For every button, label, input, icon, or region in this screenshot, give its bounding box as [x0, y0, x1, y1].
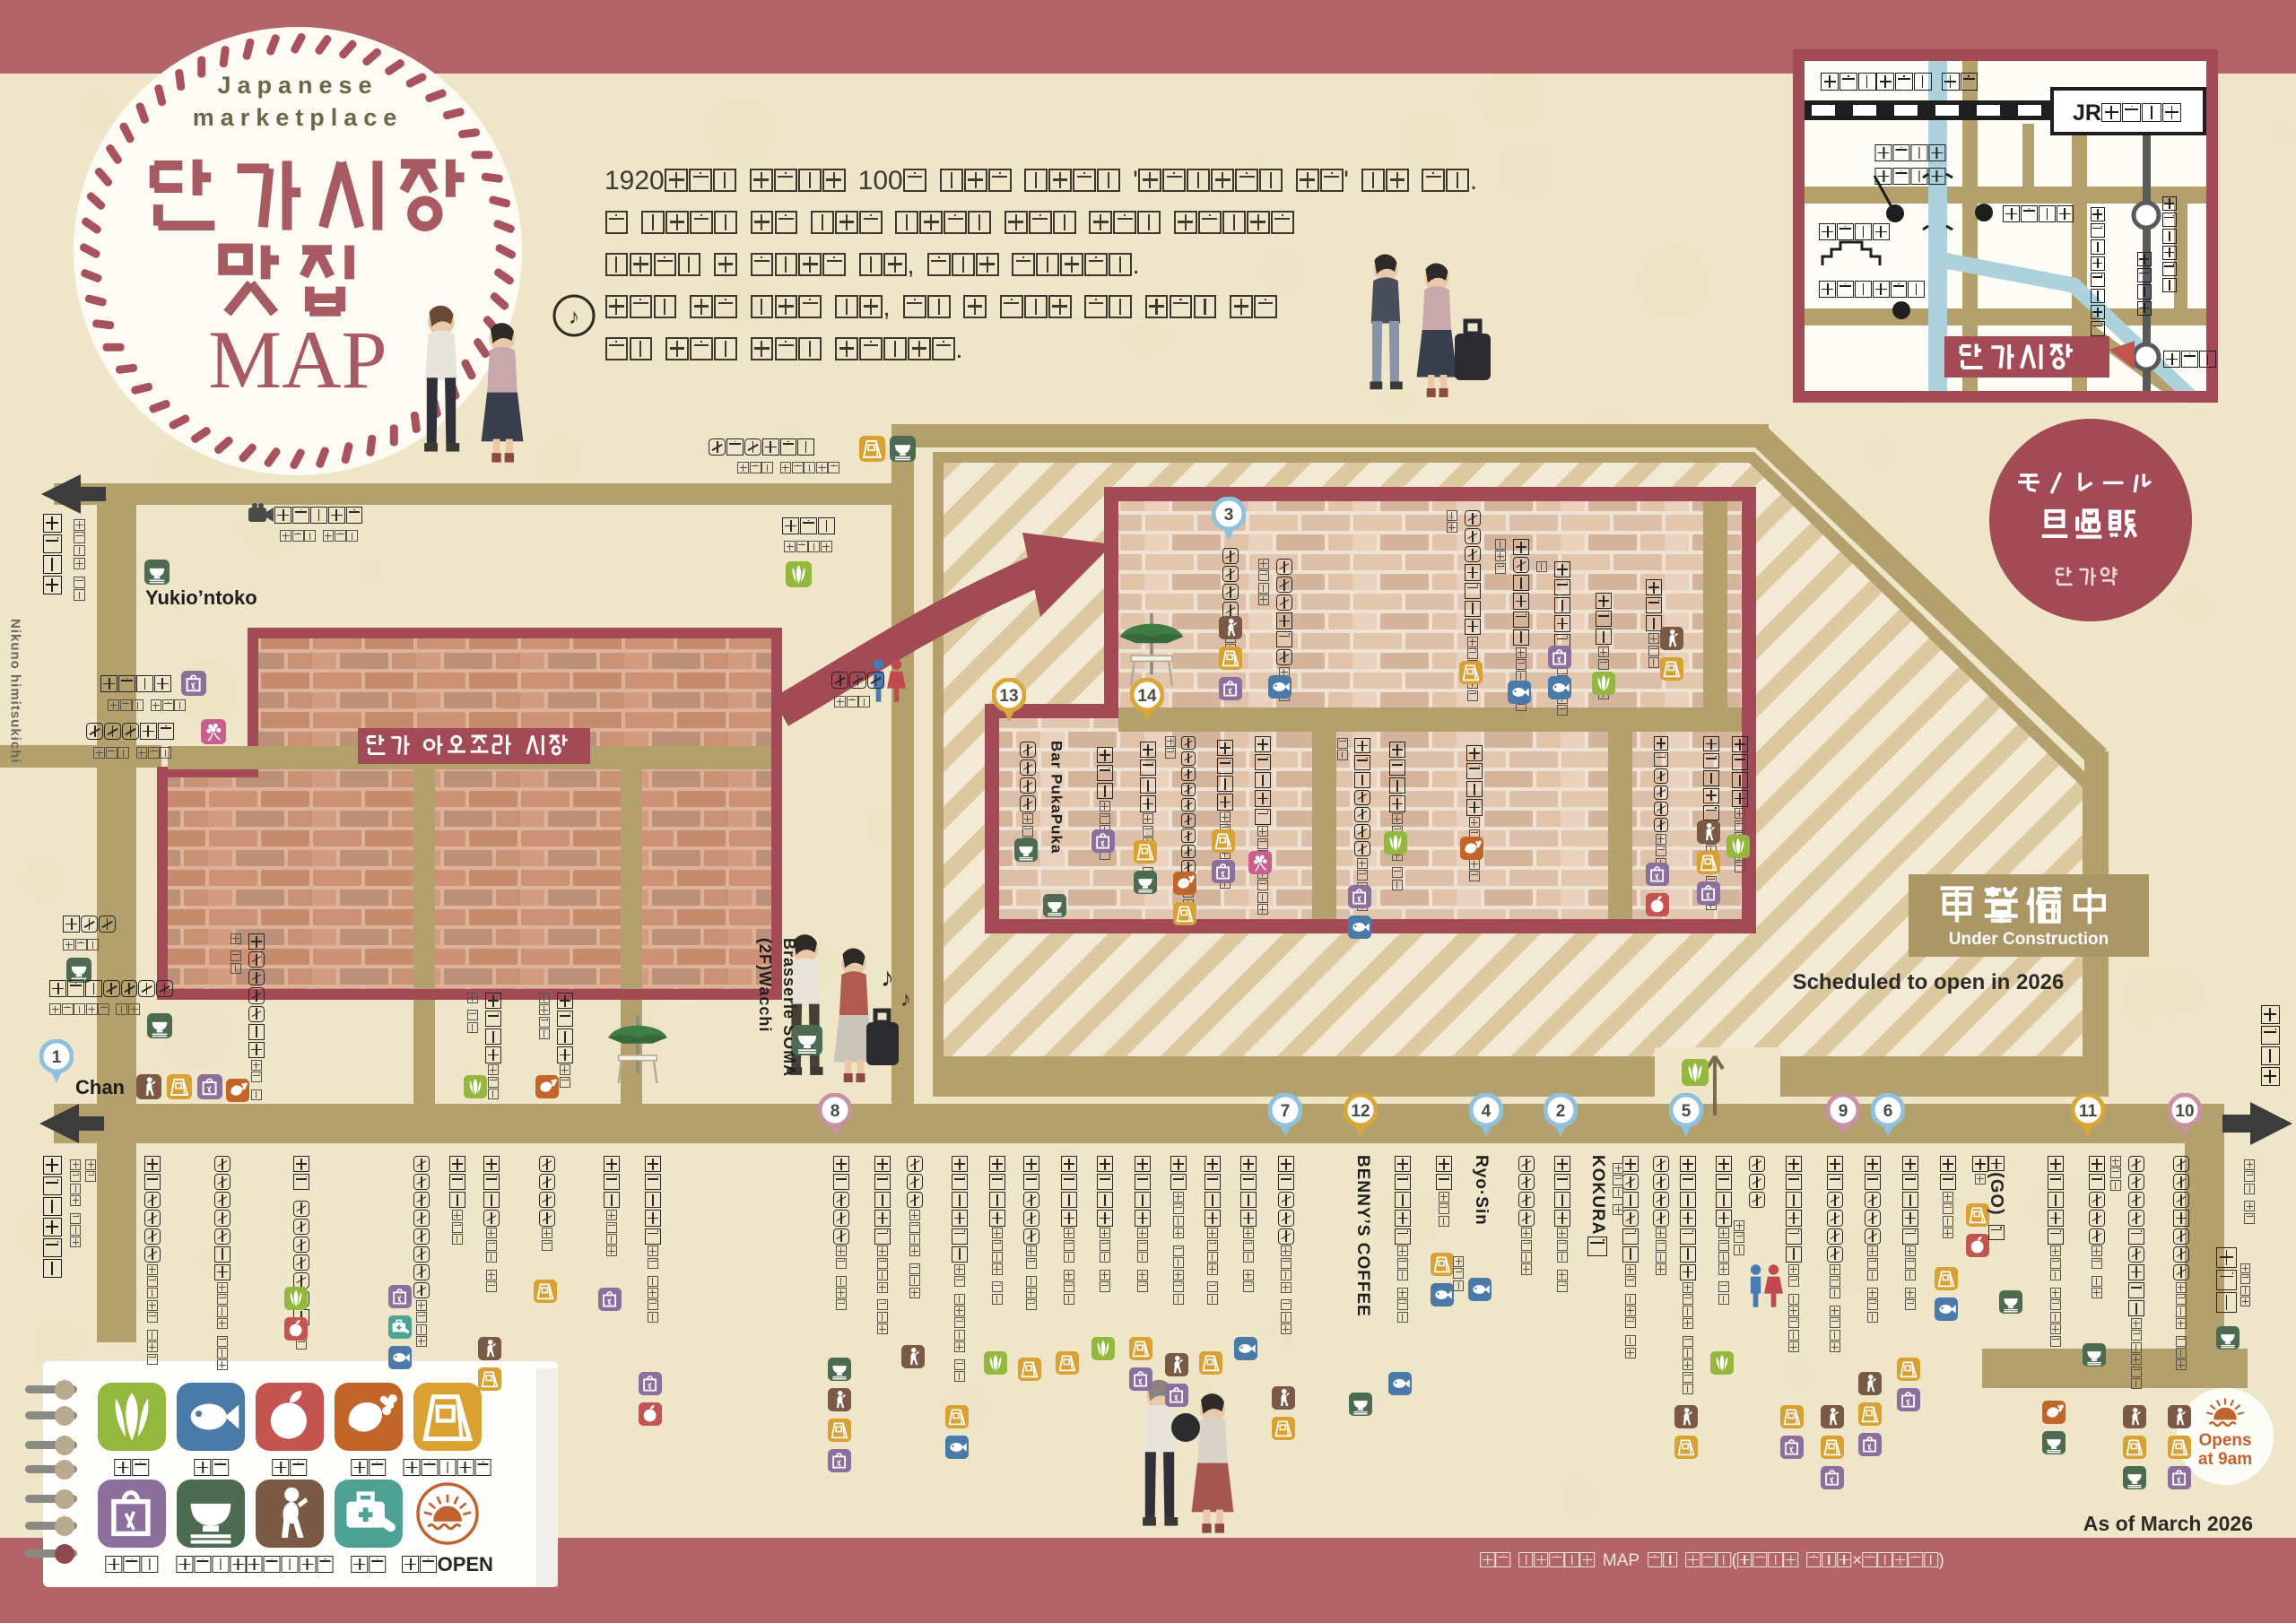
- svg-text:10: 10: [2175, 1102, 2194, 1121]
- svg-text:Opens: Opens: [2198, 1431, 2251, 1450]
- svg-text:1: 1: [52, 1048, 62, 1067]
- svg-text:8: 8: [831, 1102, 840, 1121]
- svg-text:♪: ♪: [881, 963, 894, 993]
- svg-text:7: 7: [1281, 1102, 1291, 1121]
- svg-text:Scheduled to open in 2026: Scheduled to open in 2026: [1793, 970, 2065, 994]
- svg-text:3: 3: [1224, 506, 1234, 525]
- svg-text:at 9am: at 9am: [2198, 1450, 2252, 1469]
- svg-text:♪: ♪: [900, 987, 911, 1011]
- svg-text:11: 11: [2079, 1102, 2098, 1121]
- svg-text:14: 14: [1137, 687, 1157, 706]
- svg-text:4: 4: [1482, 1102, 1492, 1121]
- svg-text:Under Construction: Under Construction: [1949, 930, 2109, 949]
- svg-text:13: 13: [999, 687, 1018, 706]
- svg-text:6: 6: [1883, 1102, 1893, 1121]
- svg-text:9: 9: [1839, 1102, 1848, 1121]
- svg-text:5: 5: [1682, 1102, 1692, 1121]
- svg-text:2: 2: [1556, 1102, 1566, 1121]
- svg-text:12: 12: [1351, 1102, 1370, 1121]
- svg-text:MAP: MAP: [208, 314, 387, 405]
